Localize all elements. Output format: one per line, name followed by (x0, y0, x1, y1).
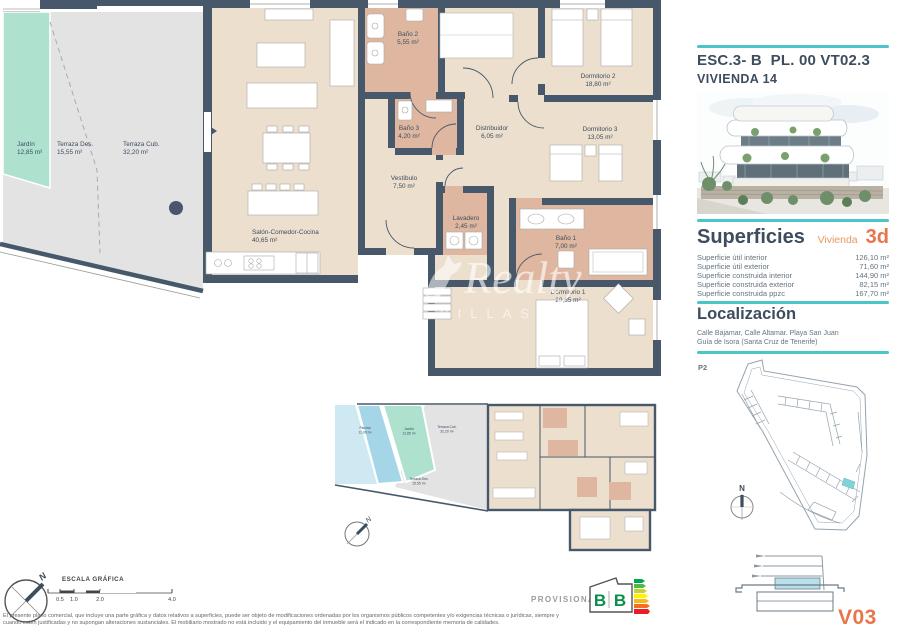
superficies-value: 144,90 m² (855, 271, 889, 280)
room-name-label: Baño 1 (556, 235, 577, 242)
room-area-label: 15,55 m² (57, 149, 82, 156)
vivienda-label: Vivienda (818, 234, 858, 246)
mini-room-name-label: Piscina (360, 426, 371, 430)
mini-overview-plan: N Piscina11,00 m²Jardín12,85 m²Terraza C… (325, 392, 675, 562)
room-name-label: Salón-Comedor-Cocina (252, 229, 319, 236)
disclaimer-text: El presente plano comercial, que incluye… (3, 613, 693, 627)
divider-rule (697, 301, 889, 304)
section-highlighted-floor (775, 578, 820, 589)
address-line2: Guía de Isora (Santa Cruz de Tenerife) (697, 339, 839, 348)
superficies-value: 126,10 m² (855, 253, 889, 262)
site-compass: N (731, 484, 753, 520)
room-name-label: Dormitorio 3 (583, 126, 618, 133)
energy-arrows (634, 579, 650, 614)
section-drawing (690, 548, 890, 618)
scale-bar (48, 589, 172, 593)
mini-room-area-label: 15,55 m² (412, 482, 426, 486)
building-render (697, 92, 889, 214)
energy-letter: B (594, 591, 606, 610)
room-area-label: 40,65 m² (252, 237, 277, 244)
room-area-label: 7,00 m² (555, 243, 577, 250)
energy-letter: B (614, 591, 626, 610)
room-name-label: Baño 2 (398, 31, 419, 38)
site-outline-inner (744, 367, 862, 523)
superficies-table: Superficie útil interior126,10 m²Superfi… (697, 253, 889, 298)
room-area-label: 13,05 m² (587, 134, 612, 141)
scale-tick-label: 1.0 (70, 597, 78, 603)
superficies-value: 167,70 m² (855, 289, 889, 298)
room-area-label: 6,05 m² (481, 133, 503, 140)
superficies-value: 71,60 m² (859, 262, 889, 271)
room-name-label: Distribuidor (476, 125, 509, 132)
room-area-label: 20,85 m² (555, 297, 580, 304)
room-area-label: 2,45 m² (455, 223, 477, 230)
mini-room-area-label: 11,00 m² (358, 431, 372, 435)
scale-tick-labels: 0.51.02.04.0 (56, 597, 176, 603)
address-line1: Calle Bajamar, Calle Altamar. Playa San … (697, 330, 839, 339)
room-name-label: Jardín (17, 141, 35, 148)
dwelling-title: VIVIENDA 14 (697, 72, 777, 86)
superficies-row: Superficie útil exterior71,60 m² (697, 262, 889, 271)
room-name-label: Baño 3 (399, 125, 420, 132)
main-floor-plan: Jardín12,85 m²Terraza Des.15,55 m²Terraz… (0, 0, 670, 385)
terrace-column (169, 201, 183, 215)
mini-room-area-label: 32,20 m² (440, 430, 454, 434)
site-highlighted-unit (842, 478, 855, 489)
scale-tick-label: 0.5 (56, 597, 64, 603)
energy-rating-icon: B B (588, 575, 650, 617)
mini-compass: N (345, 515, 374, 546)
superficies-value: 82,15 m² (859, 280, 889, 289)
section-basement (757, 592, 833, 611)
room-area-label: 5,55 m² (397, 39, 419, 46)
site-plan-label: P2 (698, 363, 707, 372)
superficies-label: Superficie útil exterior (697, 262, 769, 271)
superficies-row: Superficie construida ppzc167,70 m² (697, 289, 889, 298)
site-compass-n: N (739, 484, 745, 493)
superficies-label: Superficie construida interior (697, 271, 792, 280)
room-area-label: 18,80 m² (585, 81, 610, 88)
mini-room-area-label: 12,85 m² (402, 432, 416, 436)
disclaimer-line2: cuando estén justificadas y no supongan … (3, 620, 693, 627)
site-buildings (742, 390, 862, 523)
scale-tick-label: 4.0 (168, 597, 176, 603)
mini-room-name-label: Jardín (404, 427, 414, 431)
scale-title: ESCALA GRÁFICA (62, 576, 124, 583)
superficies-label: Superficie útil interior (697, 253, 767, 262)
mini-room-name-label: Terraza Cub. (437, 425, 456, 429)
room-area-label: 4,20 m² (398, 133, 420, 140)
scale-tick-label: 2.0 (96, 597, 104, 603)
localizacion-address: Calle Bajamar, Calle Altamar. Playa San … (697, 330, 839, 347)
plan-reference-title: ESC.3- B PL. 00 VT02.3 (697, 52, 870, 69)
garden-area (3, 12, 50, 188)
superficies-row: Superficie útil interior126,10 m² (697, 253, 889, 262)
superficies-row: Superficie construida interior144,90 m² (697, 271, 889, 280)
divider-rule (697, 45, 889, 48)
divider-rule (697, 219, 889, 222)
room-name-label: Dormitorio 2 (581, 73, 616, 80)
main-compass-n: N (37, 570, 49, 582)
superficies-row: Superficie construida exterior82,15 m² (697, 280, 889, 289)
mini-apartment (488, 405, 655, 550)
room-name-label: Lavadero (453, 215, 480, 222)
site-outline (737, 360, 867, 530)
superficies-label: Superficie construida exterior (697, 280, 794, 289)
room-name-label: Dormitorio 1 (551, 289, 586, 296)
mini-room-name-label: Terraza Des. (409, 477, 428, 481)
room-name-label: Terraza Des. (57, 141, 93, 148)
superficies-heading: Superficies (697, 226, 805, 249)
vivienda-value: 3d (866, 226, 889, 249)
disclaimer-line1: El presente plano comercial, que incluye… (3, 613, 693, 620)
mini-compass-n: N (365, 515, 374, 524)
room-area-label: 7,50 m² (393, 183, 415, 190)
room-name-label: Terraza Cub. (123, 141, 160, 148)
room-area-label: 32,20 m² (123, 149, 148, 156)
scale-compass-block: N ESCALA GRÁFICA 0.51.02.04.0 (0, 565, 210, 640)
site-plan: P2 N (690, 352, 890, 547)
room-area-label: 12,85 m² (17, 149, 42, 156)
room-name-label: Vestíbulo (391, 175, 418, 182)
localizacion-heading: Localización (697, 305, 796, 324)
superficies-label: Superficie construida ppzc (697, 289, 785, 298)
